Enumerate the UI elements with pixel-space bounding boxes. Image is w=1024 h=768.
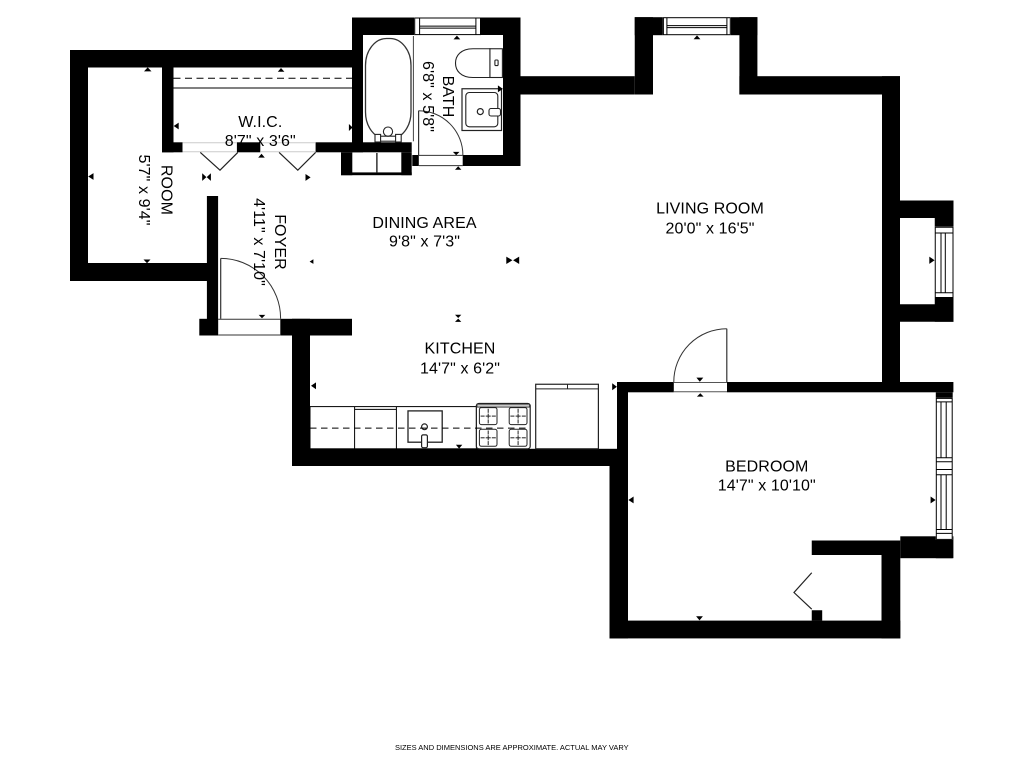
- svg-text:FOYER: FOYER: [271, 214, 288, 270]
- svg-text:BATH: BATH: [439, 76, 456, 118]
- svg-text:14'7" x 10'10": 14'7" x 10'10": [718, 478, 816, 495]
- svg-text:KITCHEN: KITCHEN: [425, 340, 496, 357]
- svg-text:ROOM: ROOM: [157, 165, 174, 215]
- svg-text:9'8" x 7'3": 9'8" x 7'3": [389, 233, 460, 250]
- svg-text:5'7" x 9'4": 5'7" x 9'4": [135, 154, 152, 225]
- svg-text:W.I.C.: W.I.C.: [238, 114, 282, 131]
- svg-text:8'7" x 3'6": 8'7" x 3'6": [225, 133, 296, 150]
- svg-text:SIZES AND DIMENSIONS ARE APPRO: SIZES AND DIMENSIONS ARE APPROXIMATE. AC…: [395, 743, 629, 752]
- svg-text:LIVING ROOM: LIVING ROOM: [656, 200, 764, 217]
- svg-text:BEDROOM: BEDROOM: [725, 458, 808, 475]
- svg-text:6'8" x 5'8": 6'8" x 5'8": [419, 61, 436, 132]
- svg-text:DINING AREA: DINING AREA: [372, 215, 476, 232]
- svg-text:4'11" x 7'10": 4'11" x 7'10": [250, 198, 267, 286]
- svg-text:20'0" x 16'5": 20'0" x 16'5": [665, 220, 754, 237]
- svg-text:14'7" x 6'2": 14'7" x 6'2": [420, 360, 500, 377]
